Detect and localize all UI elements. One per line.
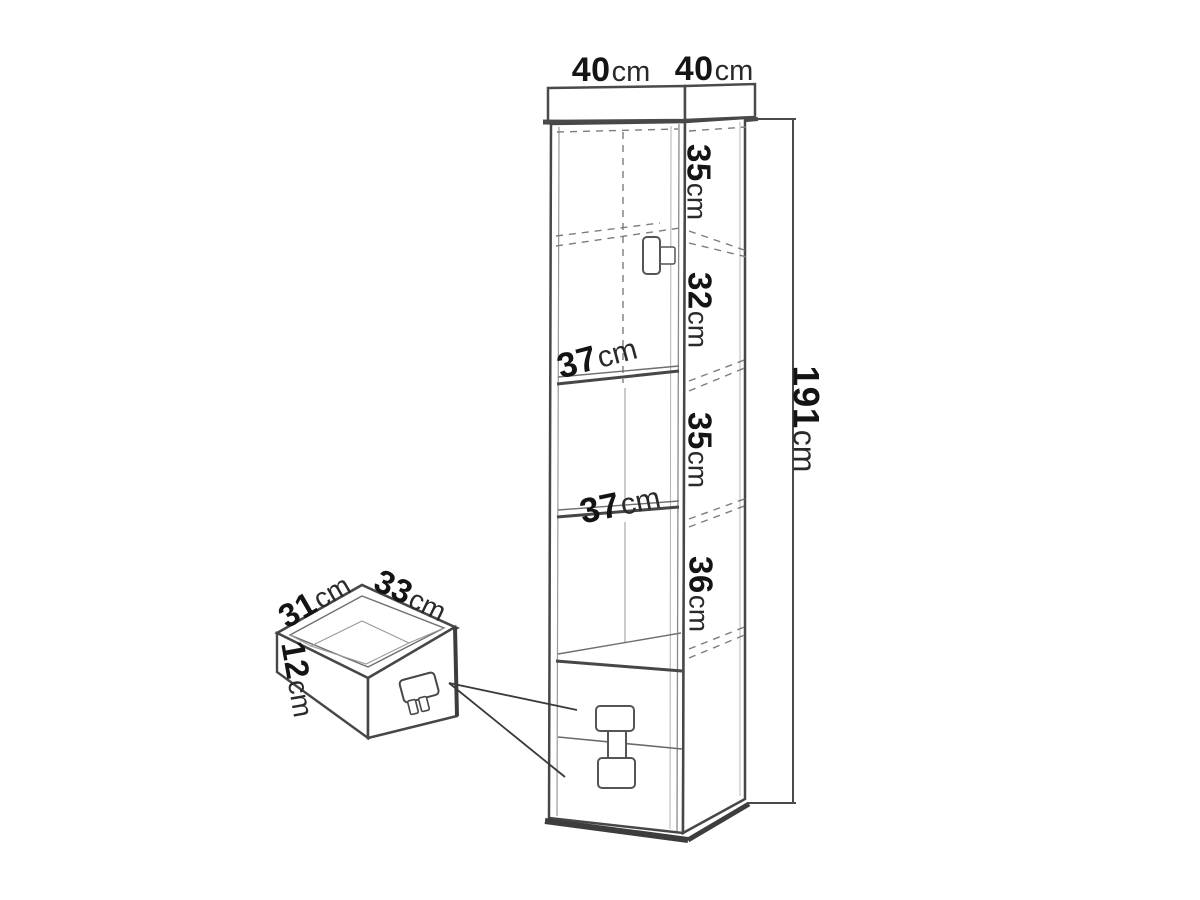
drawer-handle-connector [608,728,626,762]
dim-label-top-width-front: 40cm [572,53,651,87]
dim-label-section-4-height: 36cm [685,556,718,632]
drawer-handle-bottom [598,758,635,788]
cabinet-body [545,118,749,840]
diagram-canvas: 40cm 40cm 35cm 32cm 37cm 35cm 37cm 36cm … [0,0,1200,900]
dim-label-section-3-height: 35cm [684,412,717,488]
drawer-handle-top [596,706,634,731]
dim-label-total-height: 191cm [788,366,825,473]
dim-label-top-depth-side: 40cm [675,52,754,86]
dim-label-section-2-height: 32cm [684,272,717,348]
cabinet-line-art [0,0,1200,900]
dim-label-section-1-height: 35cm [683,144,716,220]
